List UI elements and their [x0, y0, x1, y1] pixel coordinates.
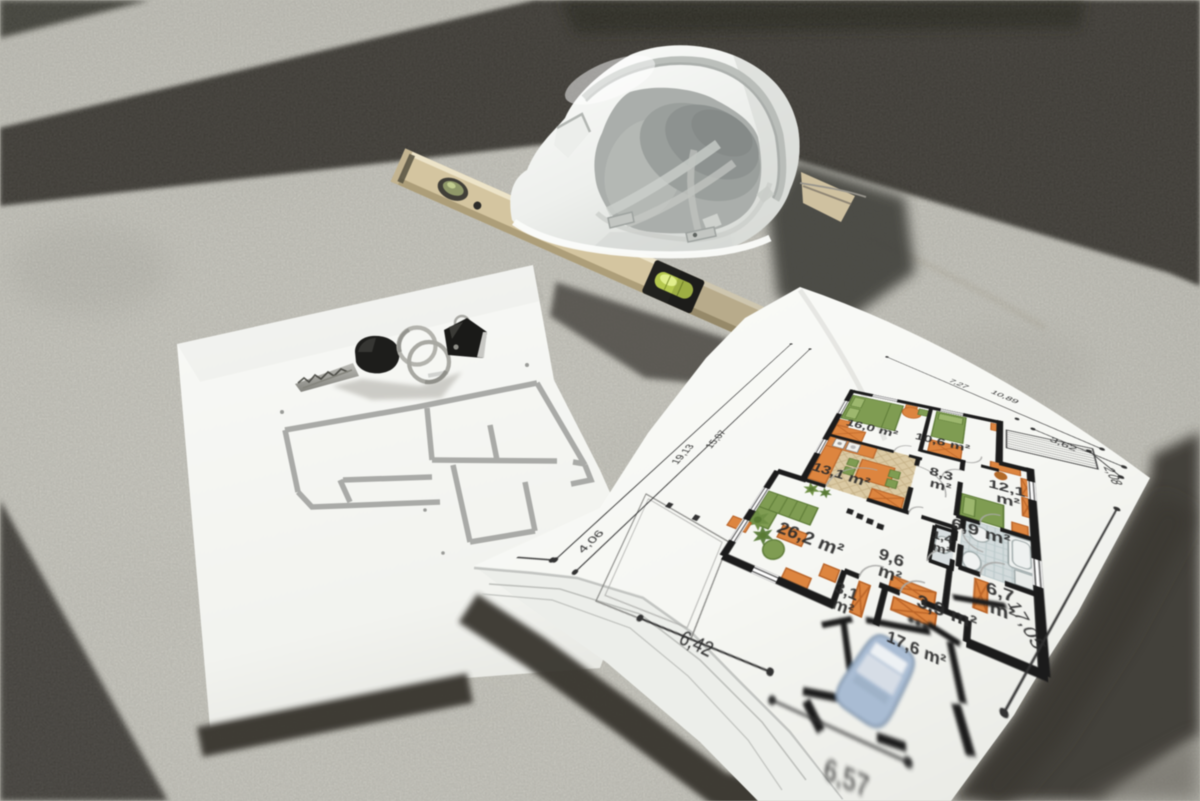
svg-text:19,13: 19,13: [669, 443, 697, 466]
svg-text:6,42: 6,42: [674, 628, 716, 664]
svg-text:4,06: 4,06: [575, 528, 607, 555]
svg-text:7,27: 7,27: [947, 378, 971, 390]
svg-text:6,57: 6,57: [821, 753, 871, 801]
svg-text:15,07: 15,07: [703, 429, 729, 449]
svg-text:3,62: 3,62: [1048, 436, 1079, 453]
